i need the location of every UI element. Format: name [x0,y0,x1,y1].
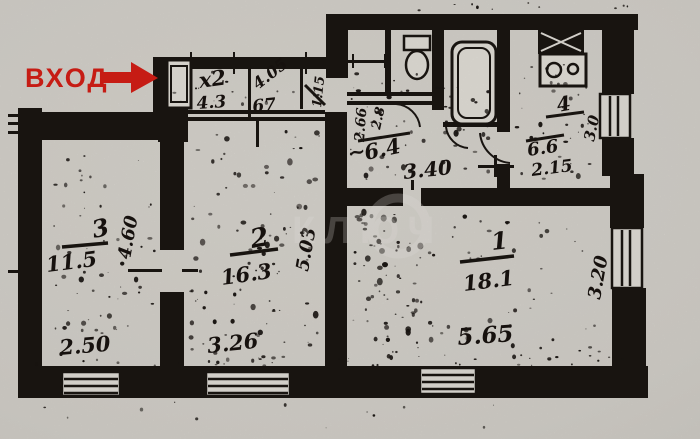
grain-overlay [0,0,700,439]
scanned-floor-plan: х2 4.3 4.05 67 1.15 2.66 2.8 ~ 6.4 3.40 … [0,0,700,439]
floor-plan-drawing: х2 4.3 4.05 67 1.15 2.66 2.8 ~ 6.4 3.40 … [0,0,700,439]
